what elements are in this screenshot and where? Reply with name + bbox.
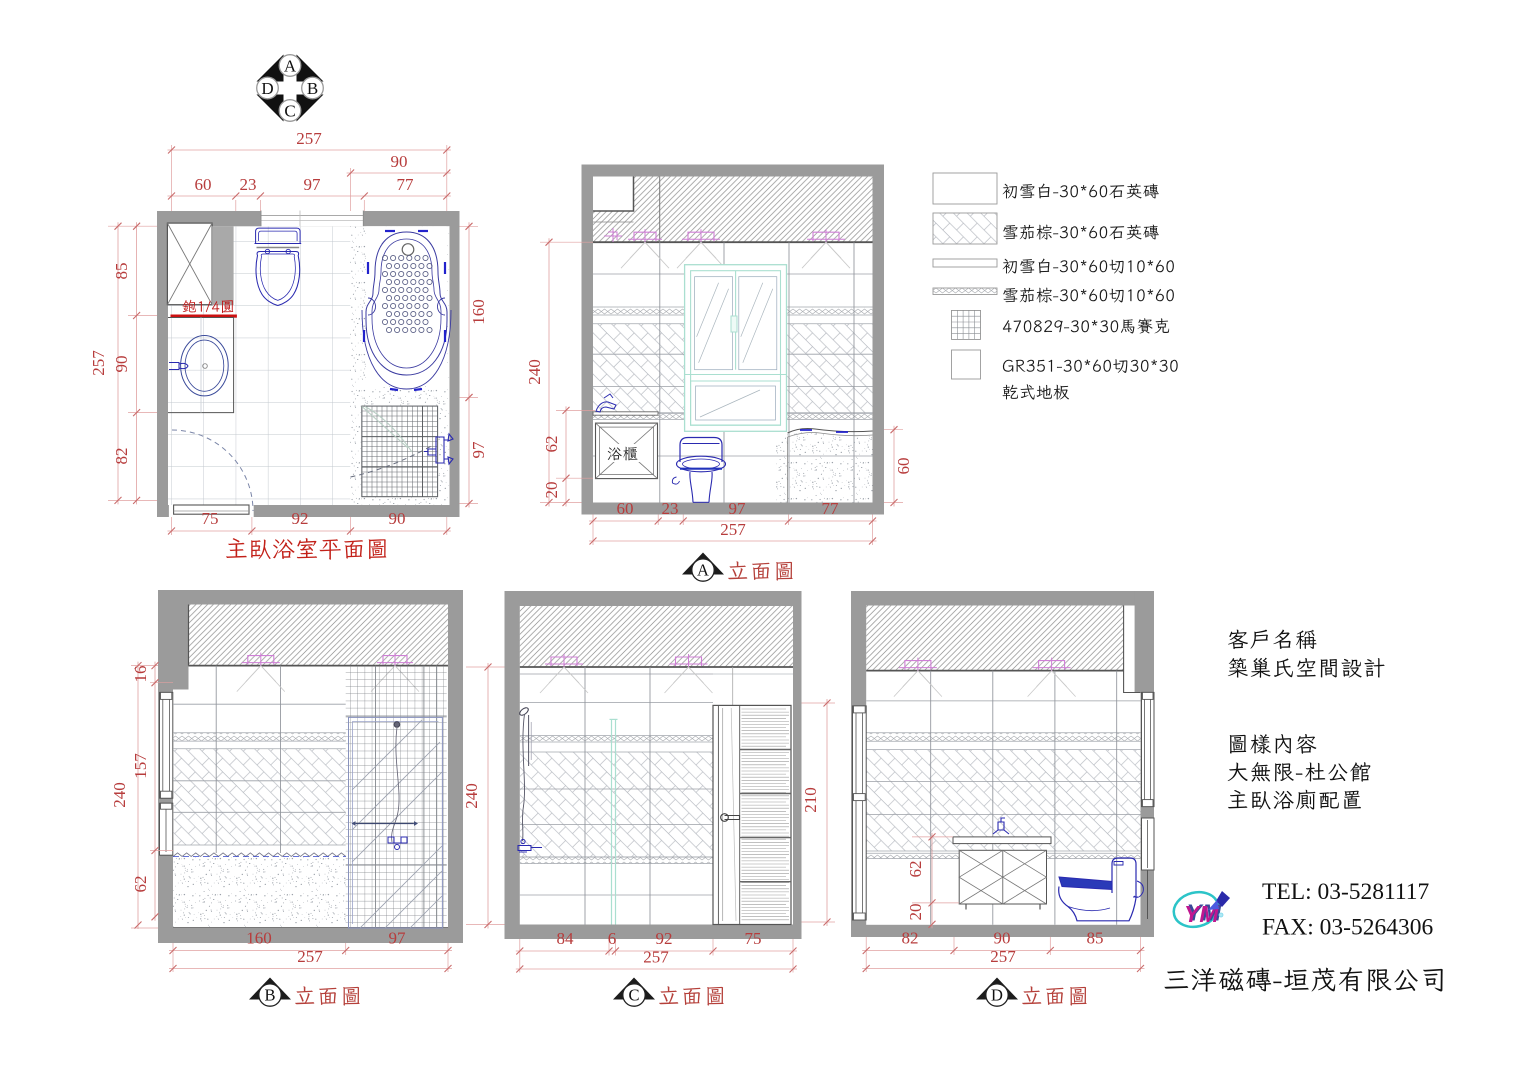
svg-text:92: 92 — [656, 929, 673, 948]
svg-text:20: 20 — [542, 482, 561, 499]
svg-text:C: C — [284, 101, 295, 120]
svg-text:82: 82 — [902, 929, 919, 948]
svg-text:90: 90 — [994, 929, 1011, 948]
svg-text:257: 257 — [990, 947, 1016, 966]
svg-text:210: 210 — [801, 787, 820, 813]
svg-text:6: 6 — [608, 929, 617, 948]
svg-text:157: 157 — [131, 753, 150, 779]
svg-text:84: 84 — [557, 929, 575, 948]
svg-text:A: A — [697, 561, 709, 580]
svg-text:62: 62 — [542, 436, 561, 453]
svg-text:D: D — [991, 986, 1003, 1005]
svg-text:257: 257 — [89, 350, 108, 376]
svg-text:60: 60 — [617, 499, 634, 518]
svg-text:97: 97 — [469, 441, 488, 459]
svg-text:60: 60 — [894, 458, 913, 475]
svg-text:240: 240 — [110, 782, 129, 808]
svg-text:257: 257 — [297, 947, 323, 966]
svg-text:62: 62 — [131, 876, 150, 893]
svg-text:75: 75 — [745, 929, 762, 948]
svg-text:77: 77 — [397, 175, 415, 194]
svg-text:82: 82 — [112, 448, 131, 465]
svg-text:77: 77 — [822, 499, 840, 518]
svg-text:257: 257 — [720, 520, 746, 539]
svg-text:160: 160 — [246, 929, 272, 948]
svg-text:23: 23 — [662, 499, 679, 518]
svg-text:257: 257 — [643, 948, 669, 967]
svg-text:C: C — [628, 986, 639, 1005]
svg-text:75: 75 — [202, 509, 219, 528]
svg-text:240: 240 — [525, 359, 544, 385]
svg-text:90: 90 — [391, 152, 408, 171]
svg-text:97: 97 — [729, 499, 747, 518]
svg-text:90: 90 — [389, 509, 406, 528]
svg-text:23: 23 — [240, 175, 257, 194]
svg-text:240: 240 — [462, 783, 481, 809]
svg-text:16: 16 — [131, 666, 150, 683]
svg-text:60: 60 — [195, 175, 212, 194]
svg-text:257: 257 — [296, 129, 322, 148]
svg-text:85: 85 — [1087, 929, 1104, 948]
svg-text:A: A — [284, 56, 297, 75]
svg-text:B: B — [307, 79, 318, 98]
svg-text:TEL: 03-5281117: TEL: 03-5281117 — [1262, 879, 1430, 905]
svg-text:62: 62 — [906, 861, 925, 878]
svg-text:97: 97 — [304, 175, 322, 194]
svg-text:20: 20 — [906, 904, 925, 921]
svg-text:90: 90 — [112, 356, 131, 373]
svg-text:160: 160 — [469, 299, 488, 325]
svg-text:92: 92 — [292, 509, 309, 528]
svg-text:D: D — [261, 79, 273, 98]
svg-text:97: 97 — [389, 929, 407, 948]
svg-text:85: 85 — [112, 263, 131, 280]
svg-text:B: B — [264, 986, 275, 1005]
svg-text:FAX: 03-5264306: FAX: 03-5264306 — [1262, 915, 1433, 941]
